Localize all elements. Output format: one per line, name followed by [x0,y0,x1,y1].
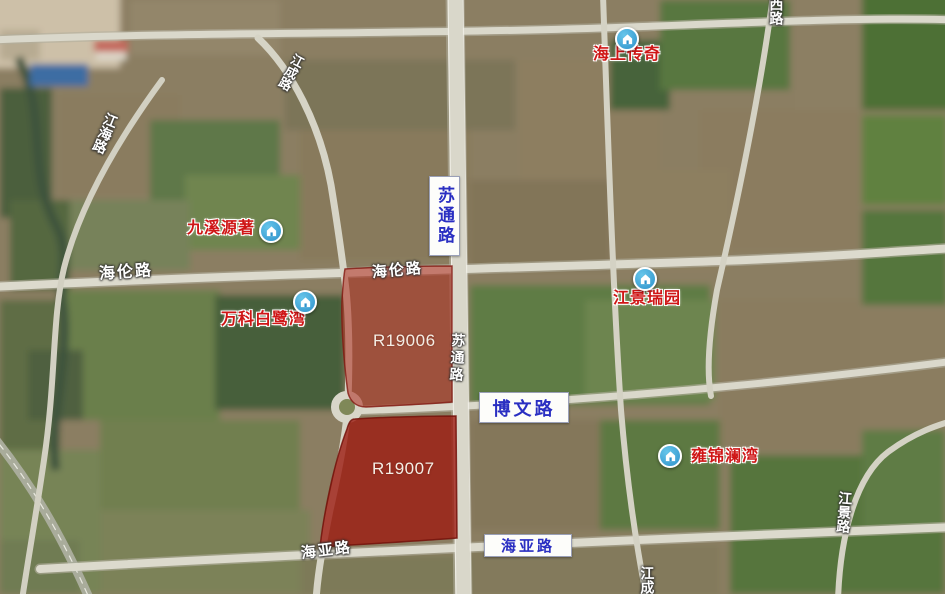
poi-icon-vanke-bailuwan[interactable] [293,290,317,314]
road-sign-sutong-road: 苏通路 [429,176,460,256]
poi-label-vanke-bailuwan[interactable]: 万科白鹭湾 [221,311,306,329]
satellite-basemap [0,0,945,594]
road-label-jiang-partial: 江成 [639,566,654,594]
road-label-xi-road-partial: 西路 [768,0,783,25]
poi-icon-haishang-chuanqi[interactable] [615,27,639,51]
road-label-jiangjing-road: 江景路 [835,491,853,534]
building-icon [639,273,652,286]
road-sign-bowen-road: 博文路 [479,392,569,423]
building-icon [299,296,312,309]
building-icon [621,33,634,46]
parcel-label-r19006: R19006 [373,332,436,351]
poi-icon-yongjin-lanwan[interactable] [658,444,682,468]
map-canvas[interactable]: R19006 R19007 江成路 江海路 海伦路 海伦路 苏通路 海亚路 江景… [0,0,945,594]
parcel-label-r19007: R19007 [372,460,435,479]
poi-icon-jiuxi-yuanzhu[interactable] [259,219,283,243]
road-label-hailun-road-west: 海伦路 [98,262,153,283]
building-icon [265,225,278,238]
road-sign-haiya-road: 海亚路 [484,534,572,557]
building-icon [664,450,677,463]
poi-label-jiuxi-yuanzhu[interactable]: 九溪源著 [187,220,255,238]
terrain [0,0,945,594]
poi-label-jiangjing-ruiyuan[interactable]: 江景瑞园 [613,290,681,308]
poi-label-yongjin-lanwan[interactable]: 雍锦澜湾 [691,448,759,466]
poi-icon-jiangjing-ruiyuan[interactable] [633,267,657,291]
road-label-sutong-road-inline: 苏通路 [448,333,466,385]
